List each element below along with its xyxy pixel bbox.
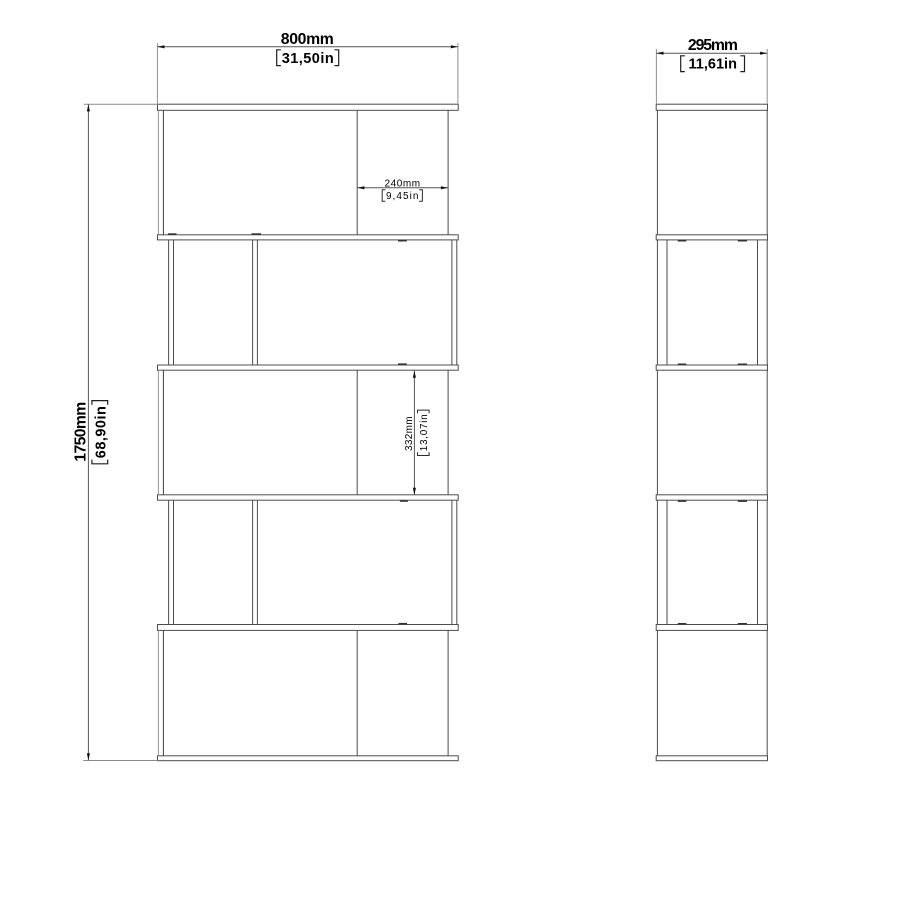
svg-text:68,90in: 68,90in: [93, 406, 109, 458]
svg-text:240mm: 240mm: [385, 178, 421, 189]
svg-text:295mm: 295mm: [688, 37, 738, 54]
svg-text:13,07in: 13,07in: [419, 414, 430, 451]
svg-text:11,61in: 11,61in: [688, 57, 737, 73]
svg-text:9,45in: 9,45in: [386, 191, 419, 202]
svg-text:332mm: 332mm: [404, 416, 415, 451]
svg-text:1750mm: 1750mm: [72, 402, 89, 462]
svg-text:31,50in: 31,50in: [282, 51, 334, 67]
svg-text:800mm: 800mm: [281, 31, 334, 48]
